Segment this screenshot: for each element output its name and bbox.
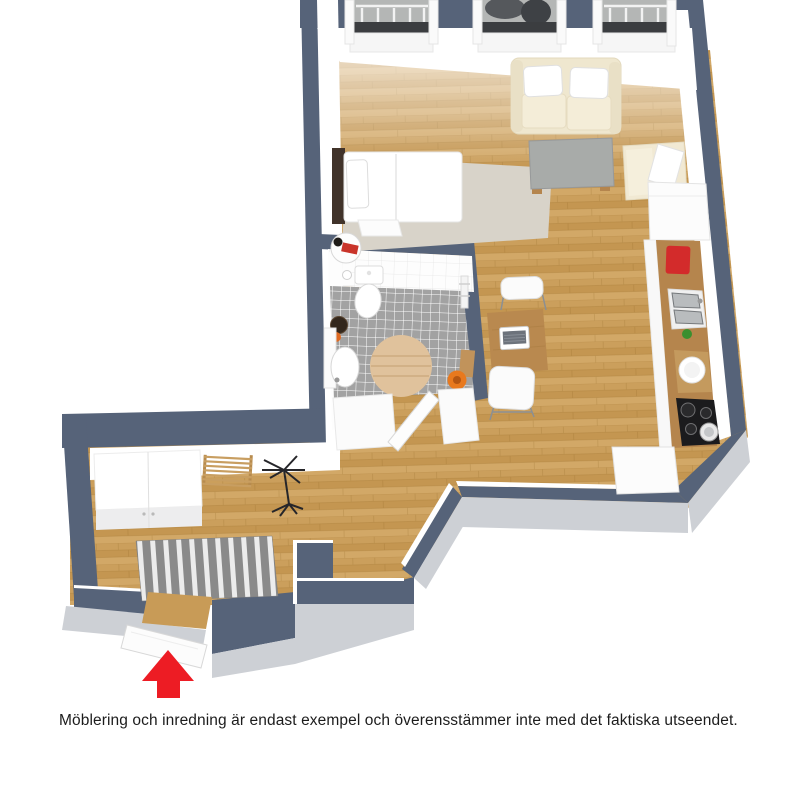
window-post: [667, 0, 676, 46]
window-bay-1: [345, 0, 438, 52]
windows: [345, 0, 676, 52]
wardrobe-handle: [151, 512, 154, 515]
duvet-fold: [358, 220, 402, 236]
sofa-pillow: [523, 65, 563, 97]
rail-bar: [461, 276, 468, 308]
door-threshold: [142, 592, 212, 629]
cooktop: [676, 398, 720, 446]
bathroom-door-stub-left: [333, 394, 396, 450]
burner: [681, 403, 695, 417]
chair-seat: [488, 366, 535, 410]
bucket: [448, 371, 467, 390]
striped-rug: [136, 536, 278, 601]
window-sill-dark: [600, 22, 672, 33]
window-post: [345, 0, 354, 44]
window-post: [473, 0, 482, 44]
window-post: [593, 0, 602, 44]
outer-face-bottom: [462, 497, 688, 533]
kitchen-faucet: [698, 299, 703, 304]
sink-bowl: [672, 293, 700, 308]
green-bottle: [682, 329, 692, 339]
kitchen-sink: [668, 289, 706, 329]
black-bottle: [334, 238, 343, 247]
apartment-3d-floorplan: [0, 0, 800, 798]
corridor-wall-face: [295, 578, 404, 581]
window-recess: [602, 0, 670, 24]
red-canister: [666, 246, 691, 275]
bedside-table: [331, 233, 361, 263]
window-sill-front: [598, 33, 675, 52]
burner: [686, 424, 697, 435]
stub-edge-top: [297, 540, 333, 543]
sofa: [511, 58, 621, 134]
coffee-table: [529, 138, 614, 194]
sink-faucet: [335, 378, 340, 383]
stub-edge-left: [293, 540, 297, 604]
entrance-stub-wall: [297, 540, 333, 604]
wardrobe-handle: [142, 512, 145, 515]
window-sill-dark: [352, 22, 431, 33]
window-bay-3: [593, 0, 676, 52]
seat-cushion: [567, 96, 611, 130]
window-sill-dark: [480, 22, 559, 33]
window-recess: [354, 0, 429, 24]
window-bay-2: [473, 0, 566, 52]
bathroom-door-stub-right: [438, 388, 479, 444]
bed-headboard: [332, 148, 345, 224]
curtain-shape: [521, 0, 551, 25]
window-sill-front: [478, 33, 561, 52]
sink-bowl: [674, 310, 703, 324]
floorplan-page: Möblering och inredning är endast exempe…: [0, 0, 800, 798]
dining-chair-bottom: [488, 366, 535, 420]
pot-lid: [704, 427, 714, 437]
plate-center: [684, 362, 700, 378]
toilet-paper-holder: [343, 271, 352, 280]
sofa-armrest-left: [511, 60, 523, 132]
end-cabinet: [612, 447, 679, 494]
window-sill-front: [350, 33, 433, 52]
flush-button: [367, 271, 371, 275]
towel-rail: [459, 276, 470, 308]
fridge-cabinet: [648, 182, 710, 240]
window-post: [429, 0, 438, 44]
chair-backrest: [501, 276, 544, 299]
burner: [701, 408, 712, 419]
coffee-table-top: [529, 138, 614, 189]
seat-cushion: [522, 94, 566, 128]
bucket-inner: [453, 376, 461, 384]
cutting-board: [674, 350, 712, 393]
laptop: [499, 326, 529, 349]
sofa-pillow: [569, 67, 608, 98]
bed-pillow: [346, 160, 369, 209]
wardrobe: [94, 450, 202, 530]
hallway-top-wall: [62, 408, 340, 448]
disclaimer-caption: Möblering och inredning är endast exempe…: [59, 712, 779, 730]
window-post: [557, 0, 566, 44]
